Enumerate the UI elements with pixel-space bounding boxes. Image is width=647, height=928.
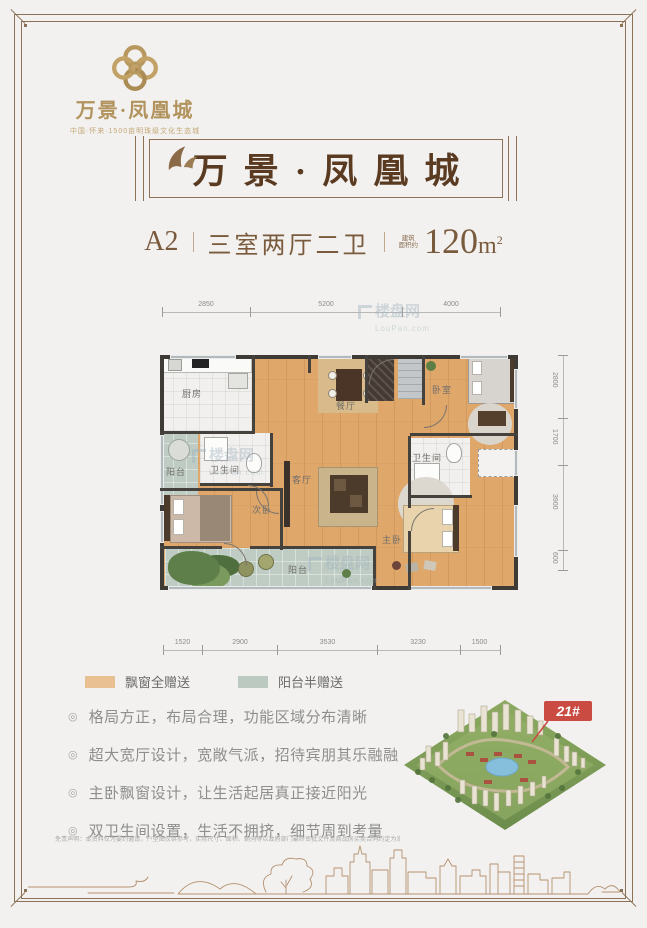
legend-item-bay-window: 飘窗全赠送 bbox=[85, 672, 190, 691]
master-pillow bbox=[442, 509, 453, 525]
unit-subtitle: A2 三室两厅二卫 建筑 面积约 120m2 bbox=[0, 222, 647, 262]
brand-emblem-icon bbox=[109, 42, 161, 94]
dim-top-1: 2850 bbox=[176, 301, 236, 308]
brand-tagline: 中国·怀来·1500亩明珠级文化生态城 bbox=[52, 126, 218, 136]
dim-top-2: 5200 bbox=[291, 301, 361, 308]
bedroom-pillow bbox=[472, 381, 482, 395]
dim-line-top bbox=[162, 312, 500, 313]
watermark-icon bbox=[308, 557, 322, 571]
balcony-plants bbox=[168, 551, 220, 585]
legend-label: 阳台半赠送 bbox=[278, 672, 343, 691]
dim-right-4: 600 bbox=[551, 552, 558, 564]
project-title: 万景·凤凰城 bbox=[177, 143, 476, 194]
dim-line-right bbox=[563, 355, 564, 570]
inner-wall bbox=[422, 355, 425, 405]
inner-wall bbox=[408, 498, 411, 508]
plan-legend: 飘窗全赠送 阳台半赠送 bbox=[85, 672, 343, 691]
brand-name: 万景·凤凰城 bbox=[52, 94, 218, 123]
master-pillow bbox=[442, 531, 453, 547]
bullet-icon: ◎ bbox=[68, 786, 78, 799]
window bbox=[318, 355, 352, 359]
frame-corner-dot bbox=[620, 889, 623, 892]
inner-wall bbox=[160, 431, 255, 434]
dim-tick bbox=[558, 465, 568, 466]
inner-wall bbox=[250, 546, 375, 549]
watermark-name: 楼盘网 bbox=[375, 304, 420, 319]
unit-layout: 三室两厅二卫 bbox=[208, 225, 370, 260]
pond bbox=[486, 758, 518, 776]
room-label-bath2: 卫生间 bbox=[412, 451, 442, 464]
area-value: 120 bbox=[424, 221, 478, 261]
dim-tick bbox=[163, 645, 164, 655]
unit-area: 120m2 bbox=[424, 224, 503, 260]
feature-text: 格局方正，布局合理，功能区域分布清晰 bbox=[89, 706, 368, 727]
room-label-dining: 餐厅 bbox=[336, 399, 356, 412]
skyline-illustration bbox=[28, 842, 620, 904]
floor-plan: 2850 5200 4000 1520 2900 3530 3230 1500 … bbox=[140, 298, 585, 662]
dim-tick bbox=[558, 355, 568, 356]
brand-logo: 万景·凤凰城 中国·怀来·1500亩明珠级文化生态城 bbox=[52, 42, 218, 136]
inner-wall bbox=[252, 355, 255, 433]
watermark-domain: LouPan.com bbox=[209, 468, 264, 477]
area-superscript: 2 bbox=[497, 233, 503, 247]
window bbox=[170, 355, 236, 359]
washer bbox=[168, 439, 190, 461]
window bbox=[410, 586, 492, 590]
inner-wall bbox=[410, 433, 518, 436]
divider bbox=[384, 232, 385, 252]
toilet-2 bbox=[446, 443, 462, 463]
balcony-pouf bbox=[258, 554, 274, 570]
master-bed-frame bbox=[453, 505, 459, 551]
banner-box: 万景·凤凰城 bbox=[149, 139, 503, 198]
room-label-bedroom: 卧室 bbox=[432, 383, 452, 396]
inner-wall bbox=[270, 433, 273, 487]
legend-item-balcony: 阳台半赠送 bbox=[238, 672, 343, 691]
feature-item: ◎ 主卧飘窗设计，让生活起居真正接近阳光 bbox=[68, 782, 368, 803]
window bbox=[514, 369, 518, 409]
dim-right-3: 3900 bbox=[551, 494, 558, 510]
room-label-balcony-bottom: 阳台 bbox=[288, 563, 308, 576]
window bbox=[514, 450, 518, 476]
dim-tick bbox=[250, 307, 251, 317]
master-floor-cushion bbox=[423, 560, 436, 571]
legend-swatch-green bbox=[238, 676, 268, 688]
dining-chair bbox=[328, 389, 337, 398]
dim-line-bottom bbox=[163, 650, 500, 651]
dim-tick bbox=[500, 645, 501, 655]
second-bed-pillow bbox=[173, 519, 184, 535]
dim-bottom-1: 1520 bbox=[160, 639, 205, 646]
dim-tick bbox=[377, 645, 378, 655]
dim-bottom-5: 1500 bbox=[452, 639, 507, 646]
plant-pot bbox=[426, 361, 436, 371]
hills bbox=[178, 882, 256, 894]
feature-text: 主卧飘窗设计，让生活起居真正接近阳光 bbox=[89, 782, 368, 803]
inner-wall bbox=[408, 436, 411, 498]
kitchen-sink bbox=[168, 359, 182, 371]
unit-code: A2 bbox=[144, 226, 178, 258]
dim-tick bbox=[558, 550, 568, 551]
banner-right-rod bbox=[508, 136, 517, 201]
dim-bottom-3: 3530 bbox=[295, 639, 360, 646]
room-label-master: 主卧 bbox=[382, 533, 402, 546]
dim-right-2: 1700 bbox=[551, 429, 558, 445]
window bbox=[160, 511, 164, 543]
dining-chair bbox=[328, 371, 337, 380]
dim-bottom-4: 3230 bbox=[388, 639, 448, 646]
watermark-icon bbox=[192, 449, 206, 463]
watermark-domain: LouPan.com bbox=[375, 324, 430, 333]
watermark-name: 楼盘网 bbox=[325, 556, 370, 571]
cooktop bbox=[192, 359, 209, 368]
dim-tick bbox=[500, 307, 501, 317]
frame-corner-dot bbox=[24, 889, 27, 892]
cloud-left bbox=[28, 877, 174, 893]
room-label-living: 客厅 bbox=[292, 473, 312, 486]
tree bbox=[256, 858, 320, 894]
dim-tick bbox=[460, 645, 461, 655]
sofa-cushion bbox=[334, 479, 346, 491]
window bbox=[514, 505, 518, 557]
area-note: 建筑 面积约 bbox=[399, 235, 419, 250]
bedroom-pillow bbox=[472, 361, 482, 375]
dim-tick bbox=[162, 307, 163, 317]
watermark: 楼盘网 LouPan.com bbox=[358, 304, 430, 335]
dim-tick bbox=[202, 645, 203, 655]
inner-wall bbox=[200, 483, 273, 486]
desk bbox=[478, 411, 506, 426]
community-rendering: 21# bbox=[396, 694, 614, 836]
inner-wall bbox=[308, 355, 311, 373]
room-label-balcony-left: 阳台 bbox=[166, 465, 186, 478]
banner-left-rod bbox=[135, 136, 144, 201]
title-banner: 万景·凤凰城 bbox=[135, 139, 517, 198]
dim-right-1: 2800 bbox=[551, 372, 558, 388]
bullet-icon: ◎ bbox=[68, 748, 78, 761]
leaf-icon bbox=[166, 142, 200, 176]
inner-wall bbox=[365, 355, 368, 403]
frame-corner-dot bbox=[620, 24, 623, 27]
inner-wall bbox=[160, 546, 222, 549]
area-unit: m bbox=[478, 233, 497, 259]
watermark-name: 楼盘网 bbox=[209, 448, 254, 463]
area-note-bottom: 面积约 bbox=[399, 242, 419, 249]
bullet-icon: ◎ bbox=[68, 710, 78, 723]
inner-wall bbox=[280, 488, 283, 550]
room-label-kitchen: 厨房 bbox=[182, 387, 202, 400]
watermark: 楼盘网 LouPan.com bbox=[192, 448, 264, 479]
master-plant bbox=[392, 561, 401, 570]
feature-item: ◎ 格局方正，布局合理，功能区域分布清晰 bbox=[68, 706, 368, 727]
dim-bottom-2: 2900 bbox=[210, 639, 270, 646]
cloud-right bbox=[574, 886, 620, 894]
dim-tick bbox=[277, 645, 278, 655]
dim-tick bbox=[558, 570, 568, 571]
area-note-top: 建筑 bbox=[402, 235, 415, 242]
sofa-cushion bbox=[350, 495, 362, 507]
fridge bbox=[228, 373, 248, 389]
shoe-cabinet bbox=[398, 357, 422, 399]
legend-label: 飘窗全赠送 bbox=[125, 672, 190, 691]
tv-cabinet bbox=[284, 461, 290, 527]
inner-wall bbox=[408, 495, 472, 498]
feature-text: 超大宽厅设计，宽敞气派，招待宾朋其乐融融 bbox=[89, 744, 399, 765]
watermark-domain: LouPan.com bbox=[325, 576, 380, 585]
door-arc bbox=[424, 405, 447, 428]
second-bed-blanket bbox=[200, 495, 230, 541]
window bbox=[160, 435, 164, 505]
door-arc bbox=[224, 543, 247, 566]
dining-table bbox=[336, 369, 362, 401]
frame-corner-dot bbox=[24, 24, 27, 27]
legend-swatch-orange bbox=[85, 676, 115, 688]
building-flag-label: 21# bbox=[555, 703, 580, 719]
second-bed-pillow bbox=[173, 499, 184, 515]
watermark: 楼盘网 LouPan.com bbox=[308, 556, 380, 587]
feature-item: ◎ 超大宽厅设计，宽敞气派，招待宾朋其乐融融 bbox=[68, 744, 399, 765]
divider bbox=[193, 232, 194, 252]
buildings bbox=[326, 846, 570, 894]
dim-tick bbox=[558, 418, 568, 419]
bay-window-box bbox=[478, 449, 518, 477]
poster-page: 万景·凤凰城 中国·怀来·1500亩明珠级文化生态城 万景·凤凰城 A2 三室两… bbox=[0, 0, 647, 928]
watermark-icon bbox=[358, 305, 372, 319]
inner-wall bbox=[408, 531, 411, 590]
window bbox=[460, 355, 508, 359]
room-label-second-bedroom: 次卧 bbox=[252, 503, 272, 516]
